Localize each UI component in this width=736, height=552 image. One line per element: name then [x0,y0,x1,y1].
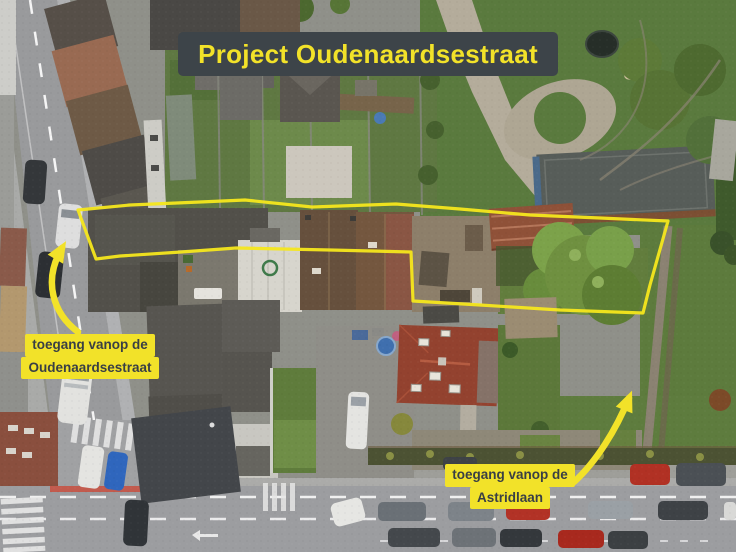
aerial-scene [0,0,736,552]
annotated-aerial-photo: Project Oudenaardsestraat toegang vanop … [0,0,736,552]
photo-grain [0,0,736,552]
